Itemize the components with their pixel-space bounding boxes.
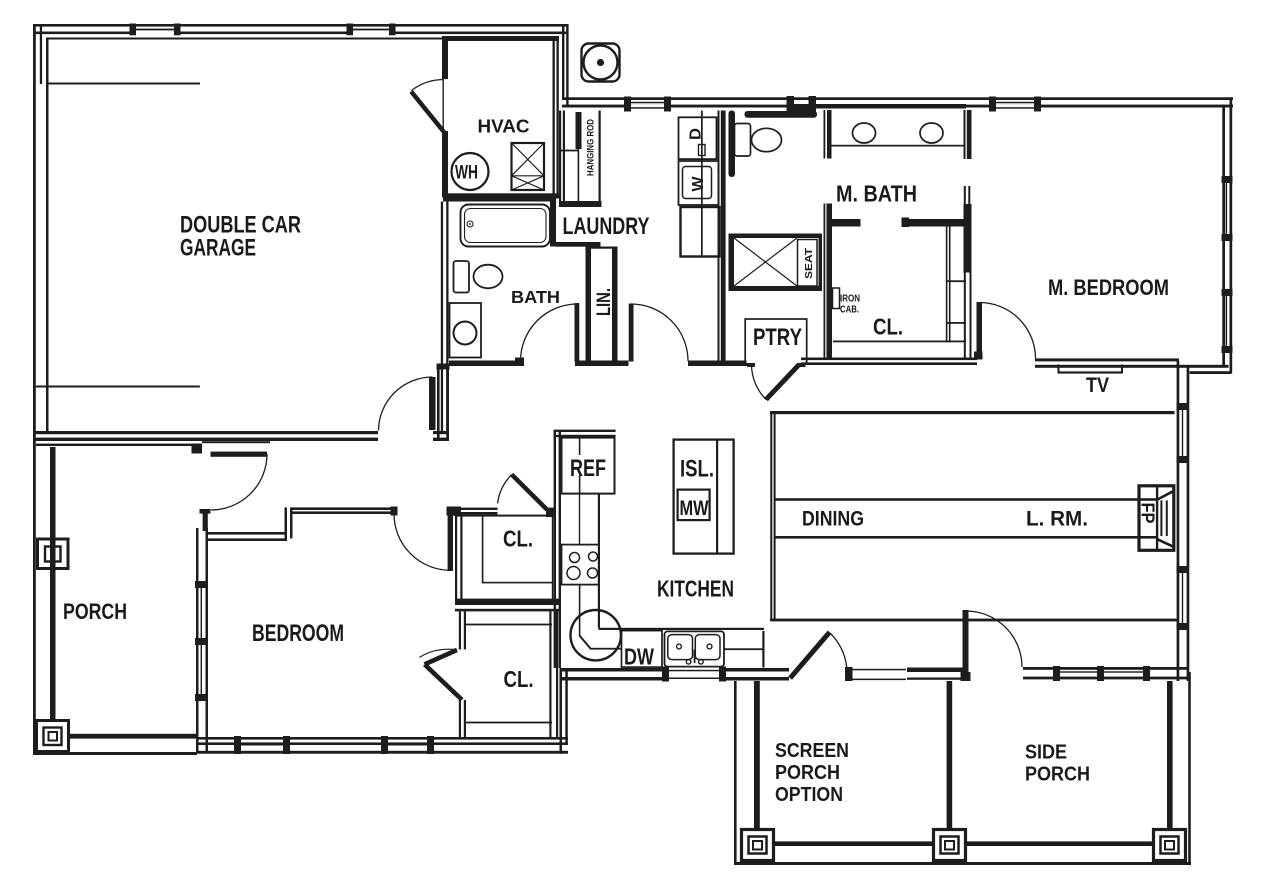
svg-text:BEDROOM: BEDROOM xyxy=(252,620,344,647)
svg-text:KITCHEN: KITCHEN xyxy=(657,576,734,602)
svg-text:GARAGE: GARAGE xyxy=(180,235,256,262)
svg-text:PORCH: PORCH xyxy=(63,599,127,624)
svg-text:SCREEN: SCREEN xyxy=(775,740,849,762)
svg-text:CAB.: CAB. xyxy=(840,304,859,316)
svg-text:MW: MW xyxy=(680,497,709,520)
svg-text:ISL.: ISL. xyxy=(680,456,714,483)
svg-text:FP: FP xyxy=(1138,503,1158,524)
svg-text:LIN.: LIN. xyxy=(594,288,615,316)
svg-text:M. BEDROOM: M. BEDROOM xyxy=(1048,275,1169,300)
svg-text:DW: DW xyxy=(624,644,654,670)
svg-text:TV: TV xyxy=(1086,374,1109,397)
svg-text:L. RM.: L. RM. xyxy=(1026,507,1088,531)
svg-text:BATH: BATH xyxy=(511,287,560,307)
svg-text:SEAT: SEAT xyxy=(803,247,815,279)
svg-text:M. BATH: M. BATH xyxy=(836,181,917,207)
svg-text:WH: WH xyxy=(455,163,478,184)
svg-text:CL.: CL. xyxy=(503,526,533,552)
svg-text:PTRY: PTRY xyxy=(753,324,802,351)
svg-text:HVAC: HVAC xyxy=(478,116,530,137)
svg-text:PORCH: PORCH xyxy=(1025,764,1090,786)
svg-text:PORCH: PORCH xyxy=(775,762,840,784)
svg-text:W: W xyxy=(690,176,707,192)
svg-text:SIDE: SIDE xyxy=(1025,742,1067,764)
svg-text:CL.: CL. xyxy=(504,666,534,692)
svg-text:REF: REF xyxy=(570,455,606,482)
svg-text:OPTION: OPTION xyxy=(775,784,843,806)
svg-text:CL.: CL. xyxy=(873,314,903,340)
svg-text:DINING: DINING xyxy=(802,507,864,531)
svg-text:HANGING ROD: HANGING ROD xyxy=(586,119,597,176)
svg-text:LAUNDRY: LAUNDRY xyxy=(563,213,650,240)
